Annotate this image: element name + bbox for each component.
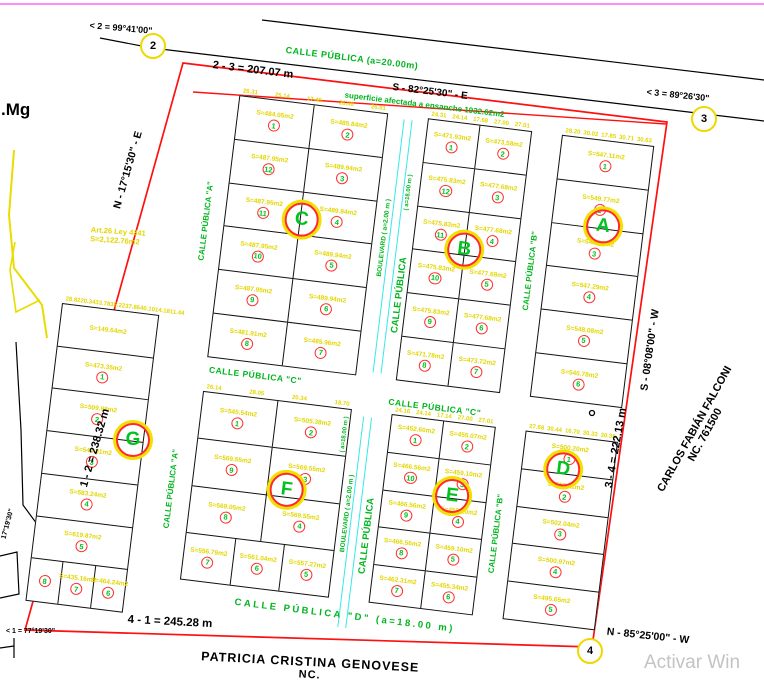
lot-number-badge: 7 (390, 584, 403, 597)
street-label-a-lower: CALLE PÚBLICA "A" (162, 449, 181, 529)
lot-number-badge: 4 (451, 515, 464, 528)
lot-cell: S=557.27m25 (279, 545, 334, 597)
lot-cell: S=481.91m28 (208, 314, 286, 365)
lot-number-badge: 7 (314, 346, 327, 359)
lot-number-badge: 9 (423, 315, 436, 328)
lot-number-badge: 8 (219, 511, 232, 524)
lot-cell: S=466.56m28 (374, 528, 429, 571)
lot-number-badge: 2 (341, 128, 354, 141)
mg-label: .Mg (1, 100, 30, 120)
block-E: S=452.60m21S=455.07m22S=466.56m210S=459.… (368, 414, 495, 615)
lot-cell: S=556.79m27 (181, 533, 235, 585)
lot-number-badge: 4 (485, 234, 498, 247)
block-F: S=545.54m21S=505.38m22S=569.55m29S=569.5… (180, 391, 352, 598)
dimension-label: 30.33 (582, 430, 598, 438)
lot-number-badge: 5 (577, 334, 590, 347)
lot-cell: S=487.95m210 (219, 227, 297, 278)
lot-number-badge: 2 (460, 440, 473, 453)
dimension-label: 26.14 (206, 384, 222, 392)
lot-cell: S=455.07m22 (439, 421, 495, 464)
lot-cell: S=569.05m28 (187, 486, 266, 541)
lot-number-badge: 1 (444, 141, 457, 154)
street-label-a-upper: CALLE PÚBLICA "A" (196, 181, 215, 261)
lot-number-badge: 1 (96, 370, 109, 383)
lot-cell: S=471.78m28 (397, 337, 453, 386)
lot-cell: S=545.54m21 (198, 392, 277, 447)
corner-marker-4: 4 (577, 638, 603, 664)
lot-cell: S=464.24m26 (90, 566, 127, 611)
lot-area: S=149.64m2 (89, 325, 127, 337)
lot-number-badge: 10 (404, 471, 418, 484)
lot-cell: S=561.04m26 (229, 539, 284, 591)
lot-number-badge: 6 (320, 302, 333, 315)
lot-number-badge: 8 (38, 574, 51, 587)
dimension-label: 27.00 (494, 119, 510, 127)
lot-number-badge: 8 (418, 359, 431, 372)
lot-number-badge: 5 (75, 540, 88, 553)
lot-number-badge: 1 (267, 119, 280, 132)
lot-cell: S=466.56m210 (383, 453, 438, 496)
lot-cell: 8 (27, 559, 63, 604)
lot-cell: S=487.95m212 (230, 140, 308, 191)
lot-number-badge: 7 (469, 365, 482, 378)
lot-cell: S=489.94m25 (292, 236, 371, 288)
lot-number-badge: 5 (299, 568, 312, 581)
lot-number-badge: 6 (442, 590, 455, 603)
corner-1-angle: < 1 = 77°19'30" (6, 628, 55, 635)
lot-number-badge: 1 (230, 417, 243, 430)
lot-cell: S=505.38m22 (271, 401, 351, 456)
lot-number-badge: 10 (251, 250, 265, 263)
lot-cell: S=485.84m22 (308, 105, 387, 157)
lot-cell: S=455.34m26 (420, 571, 476, 614)
lot-number-badge: 4 (330, 215, 343, 228)
dimension-label: 30.71 (619, 135, 635, 143)
lot-number-badge: 7 (201, 556, 214, 569)
lot-area: S=485.96m2 (303, 336, 341, 348)
street-label-b-upper: CALLE PÚBLICA "B" (521, 231, 540, 311)
dimension-label: 17.48 (306, 96, 322, 104)
lot-number-badge: 12 (439, 185, 453, 198)
dimension-label: 28.05 (249, 390, 265, 398)
dimension-label: 27.01 (478, 418, 494, 426)
lot-cell: S=473.72m27 (448, 343, 505, 392)
lot-cell: S=485.96m27 (281, 323, 360, 375)
lot-number-badge: 5 (446, 553, 459, 566)
lot-cell: S=452.60m21 (388, 415, 443, 458)
lot-cell: S=475.83m29 (402, 293, 458, 342)
lot-number-badge: 1 (598, 160, 611, 173)
dimension-label: 20.34 (291, 395, 307, 403)
lot-cell: S=477.68m23 (469, 169, 526, 218)
dimension-label: 30.44 (547, 426, 563, 434)
lot-cell: S=475.83m212 (418, 163, 474, 212)
lot-number-badge: 11 (434, 228, 447, 241)
lot-number-badge: 4 (582, 290, 595, 303)
lot-number-badge: 9 (225, 464, 238, 477)
lot-number-badge: 4 (548, 565, 561, 578)
block-badge-G: G (116, 423, 150, 457)
dimension-label: 30.02 (583, 130, 599, 138)
street-label-c-left: CALLE PÚBLICA "C" (209, 365, 303, 386)
lot-cell: S=487.95m29 (214, 270, 292, 321)
lot-number-badge: 8 (240, 337, 253, 350)
windows-activation-watermark: Activar Win (644, 652, 740, 674)
dimension-label: 26.31 (242, 89, 258, 97)
lot-number-badge: 4 (80, 498, 93, 511)
lot-number-badge: 2 (496, 147, 509, 160)
dimension-label: 27.01 (514, 122, 530, 130)
lot-cell: S=489.94m26 (287, 279, 366, 331)
lot-number-badge: 6 (572, 377, 585, 390)
lot-cell: S=477.68m26 (453, 300, 510, 349)
lot-number-badge: 3 (336, 172, 349, 185)
lot-number-badge: 5 (480, 278, 493, 291)
lot-number-badge: 11 (256, 206, 269, 219)
lot-number-badge: 1 (408, 434, 421, 447)
lot-number-badge: 10 (428, 272, 442, 285)
lot-number-badge: 9 (246, 293, 259, 306)
dimension-label: 25.14 (274, 92, 290, 100)
dimension-label: 16.70 (564, 428, 580, 436)
lot-number-badge: 4 (293, 520, 306, 533)
lot-number-badge: 3 (588, 247, 601, 260)
lot-number-badge: 6 (102, 586, 115, 599)
dimension-label: 28.20 (565, 128, 581, 136)
street-label-b-lower: CALLE PÚBLICA "B" (487, 494, 506, 574)
lot-cell: S=466.56m29 (379, 490, 434, 533)
lot-number-badge: 7 (70, 582, 83, 595)
lot-number-badge: 6 (475, 321, 488, 334)
lot-cell: S=471.93m21 (424, 119, 480, 168)
lot-number-badge: 3 (491, 191, 504, 204)
corner-marker-3: 3 (691, 106, 717, 132)
dimension-label: 27.68 (529, 424, 545, 432)
corner-marker-2: 2 (140, 33, 166, 59)
lot-number-badge: 3 (553, 528, 566, 541)
lot-number-badge: 2 (558, 490, 571, 503)
dimension-label: 26.01 (370, 104, 386, 112)
lot-cell: S=462.31m27 (370, 565, 425, 608)
art-law-note: Art.26 Ley 4341 S=2,122.76m2 (90, 225, 146, 247)
plat-drawing-page: { "watermark": "Activar Win", "labels": … (0, 0, 764, 684)
lot-cell: S=435.16m27 (58, 562, 95, 607)
lot-number-badge: 8 (395, 546, 408, 559)
lot-cell: S=569.55m29 (193, 439, 272, 494)
lot-cell: S=473.58m22 (474, 126, 531, 175)
lot-cell: S=569.55m24 (260, 495, 340, 550)
lot-number-badge: 12 (261, 163, 275, 176)
subdivision-grid: superficie afectada a ensanche 1932.62m2… (117, 62, 660, 661)
dimension-label: 18.70 (334, 400, 350, 408)
dimension-label: 17.68 (473, 117, 489, 125)
dimension-label: 24.31 (431, 112, 447, 120)
dimension-label: 17.85 (601, 133, 617, 141)
dimension-label: 24.14 (452, 114, 468, 122)
lot-cell: S=489.94m23 (303, 149, 382, 201)
lot-number-badge: 2 (304, 426, 317, 439)
lot-number-badge: 5 (544, 603, 557, 616)
dimension-label: 26.00 (338, 100, 354, 108)
lot-number-badge: 9 (399, 509, 412, 522)
dimension-label: 30.63 (636, 137, 652, 145)
lot-cell: S=459.10m25 (425, 534, 481, 577)
lot-number-badge: 5 (325, 259, 338, 272)
lot-cell: S=484.05m21 (235, 96, 313, 147)
lot-number-badge: 6 (250, 562, 263, 575)
